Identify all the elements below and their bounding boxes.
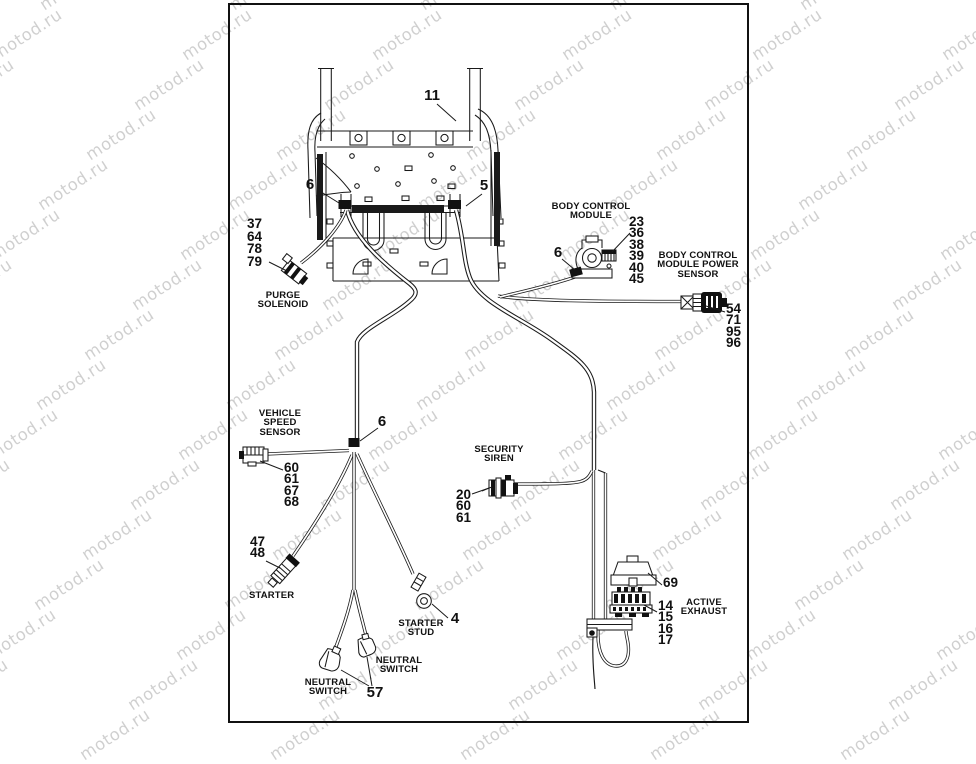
security-siren-connector <box>482 475 518 498</box>
part-number: 48 <box>250 547 265 558</box>
neutral-switch-right-label: NEUTRAL SWITCH <box>364 656 434 675</box>
active-exhaust-connector <box>610 587 652 617</box>
callout-6-left-clamp: 6 <box>303 176 317 193</box>
rear-frame <box>308 68 505 281</box>
callout-5-right-clamp: 5 <box>477 177 491 194</box>
bcm-power-sensor-label: BODY CONTROL MODULE POWER SENSOR <box>648 251 748 279</box>
starter-connector <box>265 553 299 589</box>
callout-57-neutral-switch: 57 <box>363 684 387 701</box>
label-line: STUD <box>391 628 451 637</box>
purge-solenoid-label: PURGE SOLENOID <box>243 291 323 310</box>
clamp-6-harness <box>349 438 360 447</box>
callout-11: 11 <box>420 87 444 104</box>
neutral-switch-connector-left <box>318 643 346 674</box>
label-line: MODULE <box>546 211 636 220</box>
starter-label: STARTER <box>249 591 297 600</box>
label-line: SWITCH <box>364 665 434 674</box>
neutral-switch-left-label: NEUTRAL SWITCH <box>293 678 363 697</box>
part-number: 68 <box>284 496 299 507</box>
security-siren-numbers: 20 60 61 <box>456 489 471 523</box>
body-control-module-label: BODY CONTROL MODULE <box>546 202 636 221</box>
purge-solenoid-numbers: 37 64 78 79 <box>247 218 262 268</box>
part-number: 69 <box>663 577 678 588</box>
starter-stud-label: STARTER STUD <box>391 619 451 638</box>
callout-6-harness: 6 <box>375 413 389 430</box>
exhaust-drop-wire <box>593 637 595 689</box>
neutral-switch-connector-right <box>355 632 377 658</box>
bcm-power-sensor-connector <box>681 292 727 313</box>
label-line: SOLENOID <box>243 300 323 309</box>
part-number: 17 <box>658 634 673 645</box>
vehicle-speed-sensor-connector <box>239 447 268 466</box>
label-line: SENSOR <box>648 270 748 279</box>
wiring-diagram-art <box>0 0 976 732</box>
label-line: SIREN <box>459 454 539 463</box>
part-number: 96 <box>726 337 741 348</box>
clamp-5-right <box>448 200 461 209</box>
part-number: 79 <box>247 256 262 269</box>
label-line: SENSOR <box>240 428 320 437</box>
vehicle-speed-sensor-numbers: 60 61 67 68 <box>284 462 299 508</box>
starter-numbers: 47 48 <box>250 536 265 559</box>
frame-clip <box>350 131 453 145</box>
label-line: EXHAUST <box>664 607 744 616</box>
active-exhaust-cap <box>611 556 656 586</box>
active-exhaust-label: ACTIVE EXHAUST <box>664 598 744 617</box>
security-siren-label: SECURITY SIREN <box>459 445 539 464</box>
body-control-module-numbers: 23 36 38 39 40 45 <box>629 216 644 284</box>
starter-stud-terminal <box>411 573 431 608</box>
part-number: 61 <box>456 512 471 523</box>
label-line: STARTER <box>249 591 297 600</box>
callout-6-bcm: 6 <box>551 244 565 261</box>
vehicle-speed-sensor-label: VEHICLE SPEED SENSOR <box>240 409 320 437</box>
active-exhaust-cap-number: 69 <box>663 577 678 588</box>
clamp-6-left <box>339 200 352 209</box>
part-number: 45 <box>629 273 644 284</box>
bcm-power-sensor-numbers: 54 71 95 96 <box>726 303 741 349</box>
label-line: SWITCH <box>293 687 363 696</box>
